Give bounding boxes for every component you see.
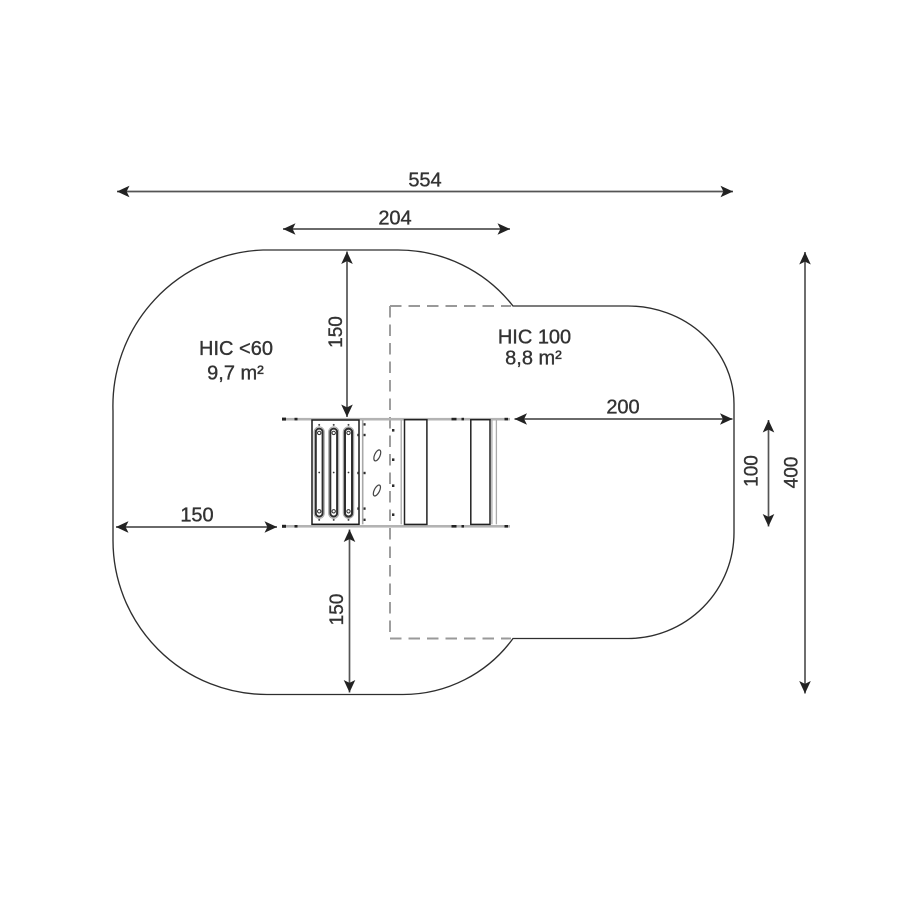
svg-text:150: 150 [326, 316, 347, 348]
svg-text:554: 554 [408, 170, 441, 192]
svg-text:8,8 m²: 8,8 m² [505, 348, 562, 370]
svg-text:150: 150 [327, 594, 348, 626]
svg-text:100: 100 [742, 455, 763, 487]
svg-text:400: 400 [782, 457, 803, 489]
svg-text:HIC <60: HIC <60 [199, 338, 273, 360]
svg-text:150: 150 [180, 505, 213, 527]
svg-text:204: 204 [378, 208, 411, 230]
svg-text:9,7 m²: 9,7 m² [207, 363, 264, 385]
svg-text:HIC 100: HIC 100 [498, 327, 571, 349]
svg-text:200: 200 [606, 397, 639, 419]
